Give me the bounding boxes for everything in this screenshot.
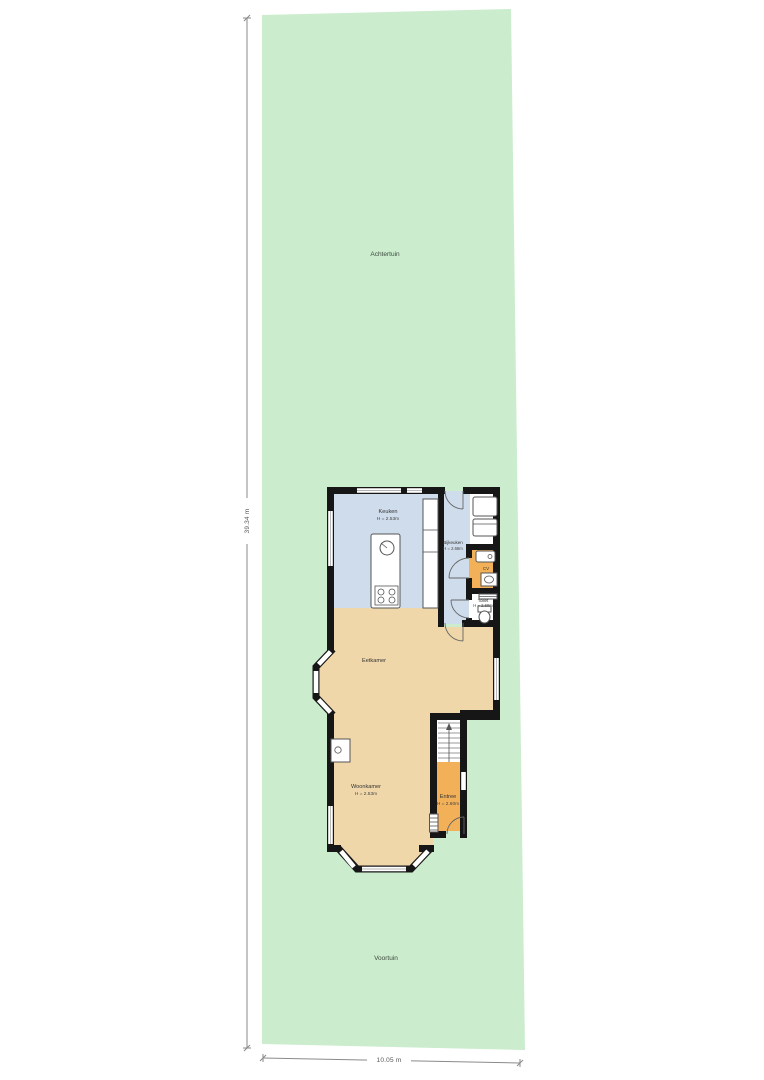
entree-label: Entree — [440, 794, 456, 800]
fireplace — [331, 739, 350, 762]
site-plan: Achtertuin Voortuin 39.34 m 10.05 m — [0, 0, 764, 1080]
plot-width-label: 10.05 m — [377, 1057, 402, 1064]
plot-depth-dimension: 39.34 m — [240, 15, 254, 1051]
kitchen-counter — [423, 499, 438, 608]
keuken-label: Keuken — [379, 509, 398, 515]
glazed-panel-woonkamer-entree — [430, 814, 439, 832]
utility-appliances — [473, 497, 497, 536]
woonkamer-label: Woonkamer — [351, 784, 381, 790]
toilet-height: H = 2.60m — [473, 603, 493, 608]
bijkeuken-label: Bijkeuken — [443, 540, 463, 545]
cv-label: CV — [483, 566, 489, 571]
kitchen-island — [371, 534, 400, 608]
plot-width-dimension: 10.05 m — [260, 1053, 523, 1067]
bijkeuken-height: H = 2.66m — [443, 546, 463, 551]
keuken-height: H = 2.53m — [377, 516, 399, 522]
floorplan-page: Achtertuin Voortuin 39.34 m 10.05 m — [0, 0, 764, 1080]
entree-height: H = 2.60m — [437, 801, 459, 807]
eetkamer-label: Eetkamer — [362, 658, 386, 664]
plot-depth-label: 39.34 m — [244, 509, 251, 534]
woonkamer-height: H = 2.53m — [355, 791, 377, 797]
back-garden-label: Achtertuin — [370, 251, 400, 258]
front-garden-label: Voortuin — [374, 955, 398, 962]
